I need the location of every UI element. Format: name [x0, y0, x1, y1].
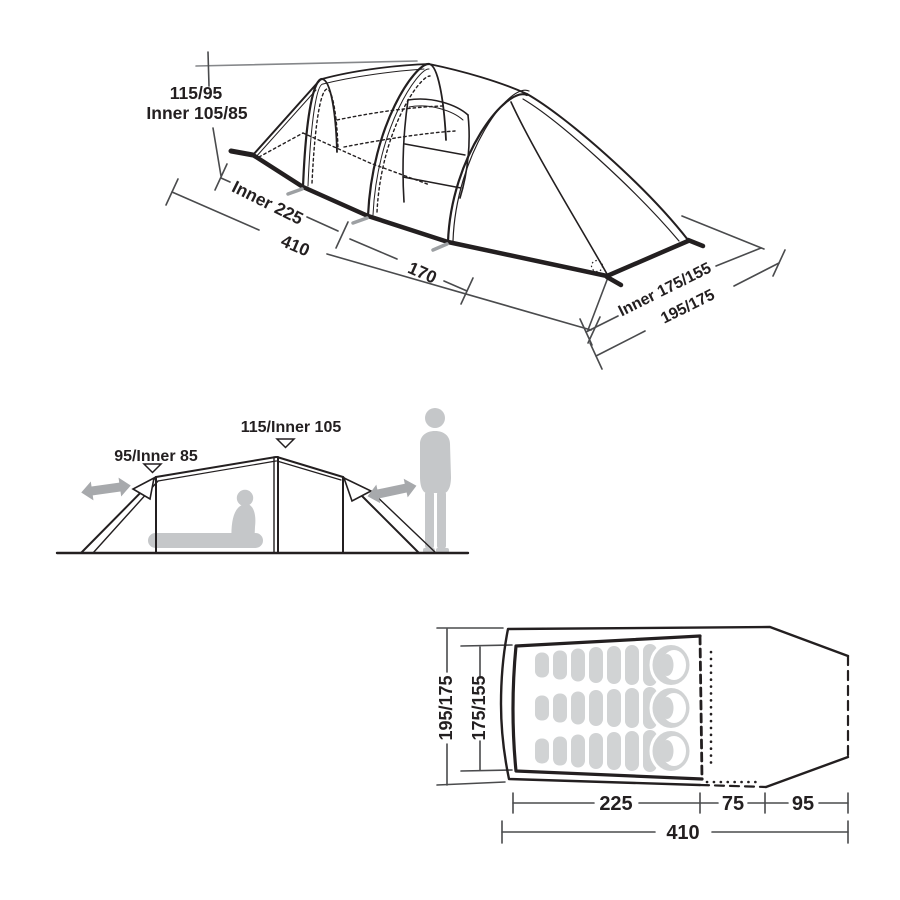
total-length-label: 410 [278, 231, 313, 261]
sleeping-bag-icon-3 [535, 730, 691, 773]
right-ventilation-arrow-icon [366, 477, 419, 506]
floor-plan-view: 195/175 175/155 225 75 95 410 [436, 627, 848, 844]
front-height-marker-triangle [144, 464, 161, 473]
perspective-view: 115/95 Inner 105/85 Inner 225 410 170 In… [146, 52, 785, 369]
tent-fly-lines [253, 64, 688, 274]
plan-inner-width-label: 175/155 [469, 675, 489, 740]
porch-length-label: 170 [405, 257, 440, 287]
sleeping-bag-icon-1 [535, 644, 691, 687]
main-pole-height-label: 115/Inner 105 [241, 419, 342, 436]
door-dotted-lines [707, 652, 762, 782]
inner-tent-dotted-lines [259, 76, 455, 212]
plan-total-length-label: 410 [666, 822, 699, 844]
sleeping-bag-icon-2 [535, 687, 691, 730]
right-vent-flap [344, 478, 371, 501]
standing-person-silhouette [420, 408, 451, 553]
plan-inner-length-label: 225 [599, 793, 632, 815]
inner-height-label: Inner 105/85 [146, 103, 247, 123]
tent-diagram-svg: 115/95 Inner 105/85 Inner 225 410 170 In… [0, 0, 900, 900]
seated-person-silhouette [148, 490, 263, 548]
width-dimension-lines [580, 216, 785, 369]
side-elevation-view: 95/Inner 85 115/Inner 105 [57, 408, 468, 553]
front-pole-height-label: 95/Inner 85 [114, 448, 198, 465]
left-ventilation-arrow-icon [80, 476, 132, 502]
main-height-marker-triangle [277, 439, 294, 448]
tent-ground-hem-line [253, 155, 688, 276]
inner-door-frame [403, 99, 469, 202]
tent-poles [303, 64, 529, 242]
tent-dimension-sheet: 115/95 Inner 105/85 Inner 225 410 170 In… [0, 0, 900, 900]
plan-outer-width-label: 195/175 [436, 675, 456, 740]
plan-porch-depth-label: 95 [792, 793, 814, 815]
plan-door-depth-label: 75 [722, 793, 744, 815]
peak-height-label: 115/95 [170, 83, 223, 103]
